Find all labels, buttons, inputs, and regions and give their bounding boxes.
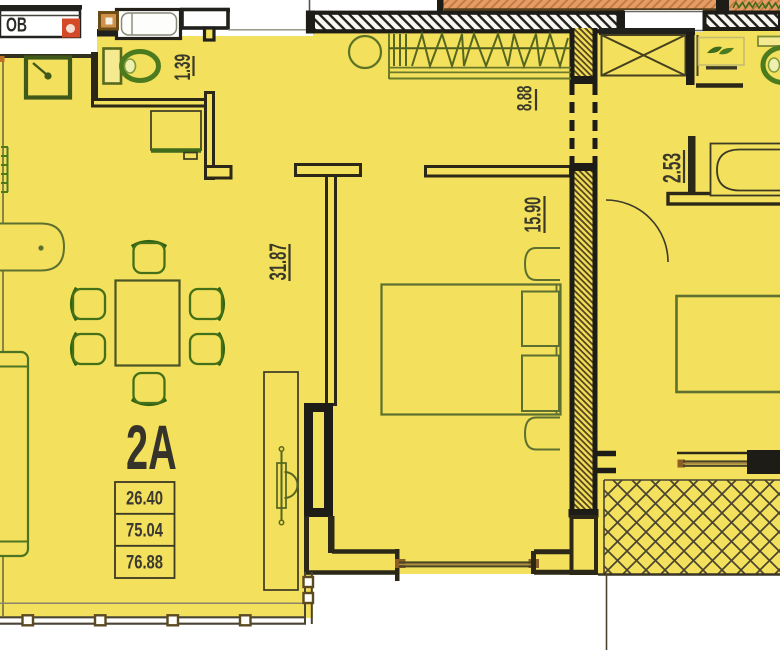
svg-text:2A: 2A <box>126 413 177 484</box>
svg-text:15.90: 15.90 <box>521 197 546 233</box>
svg-text:75.04: 75.04 <box>126 520 164 541</box>
svg-text:2.53: 2.53 <box>659 153 687 183</box>
svg-text:76.88: 76.88 <box>126 552 163 573</box>
svg-text:31.87: 31.87 <box>266 243 292 280</box>
svg-text:8.88: 8.88 <box>512 85 536 111</box>
svg-text:OB: OB <box>6 15 27 37</box>
svg-text:26.40: 26.40 <box>126 488 163 509</box>
svg-text:1.39: 1.39 <box>170 54 195 81</box>
